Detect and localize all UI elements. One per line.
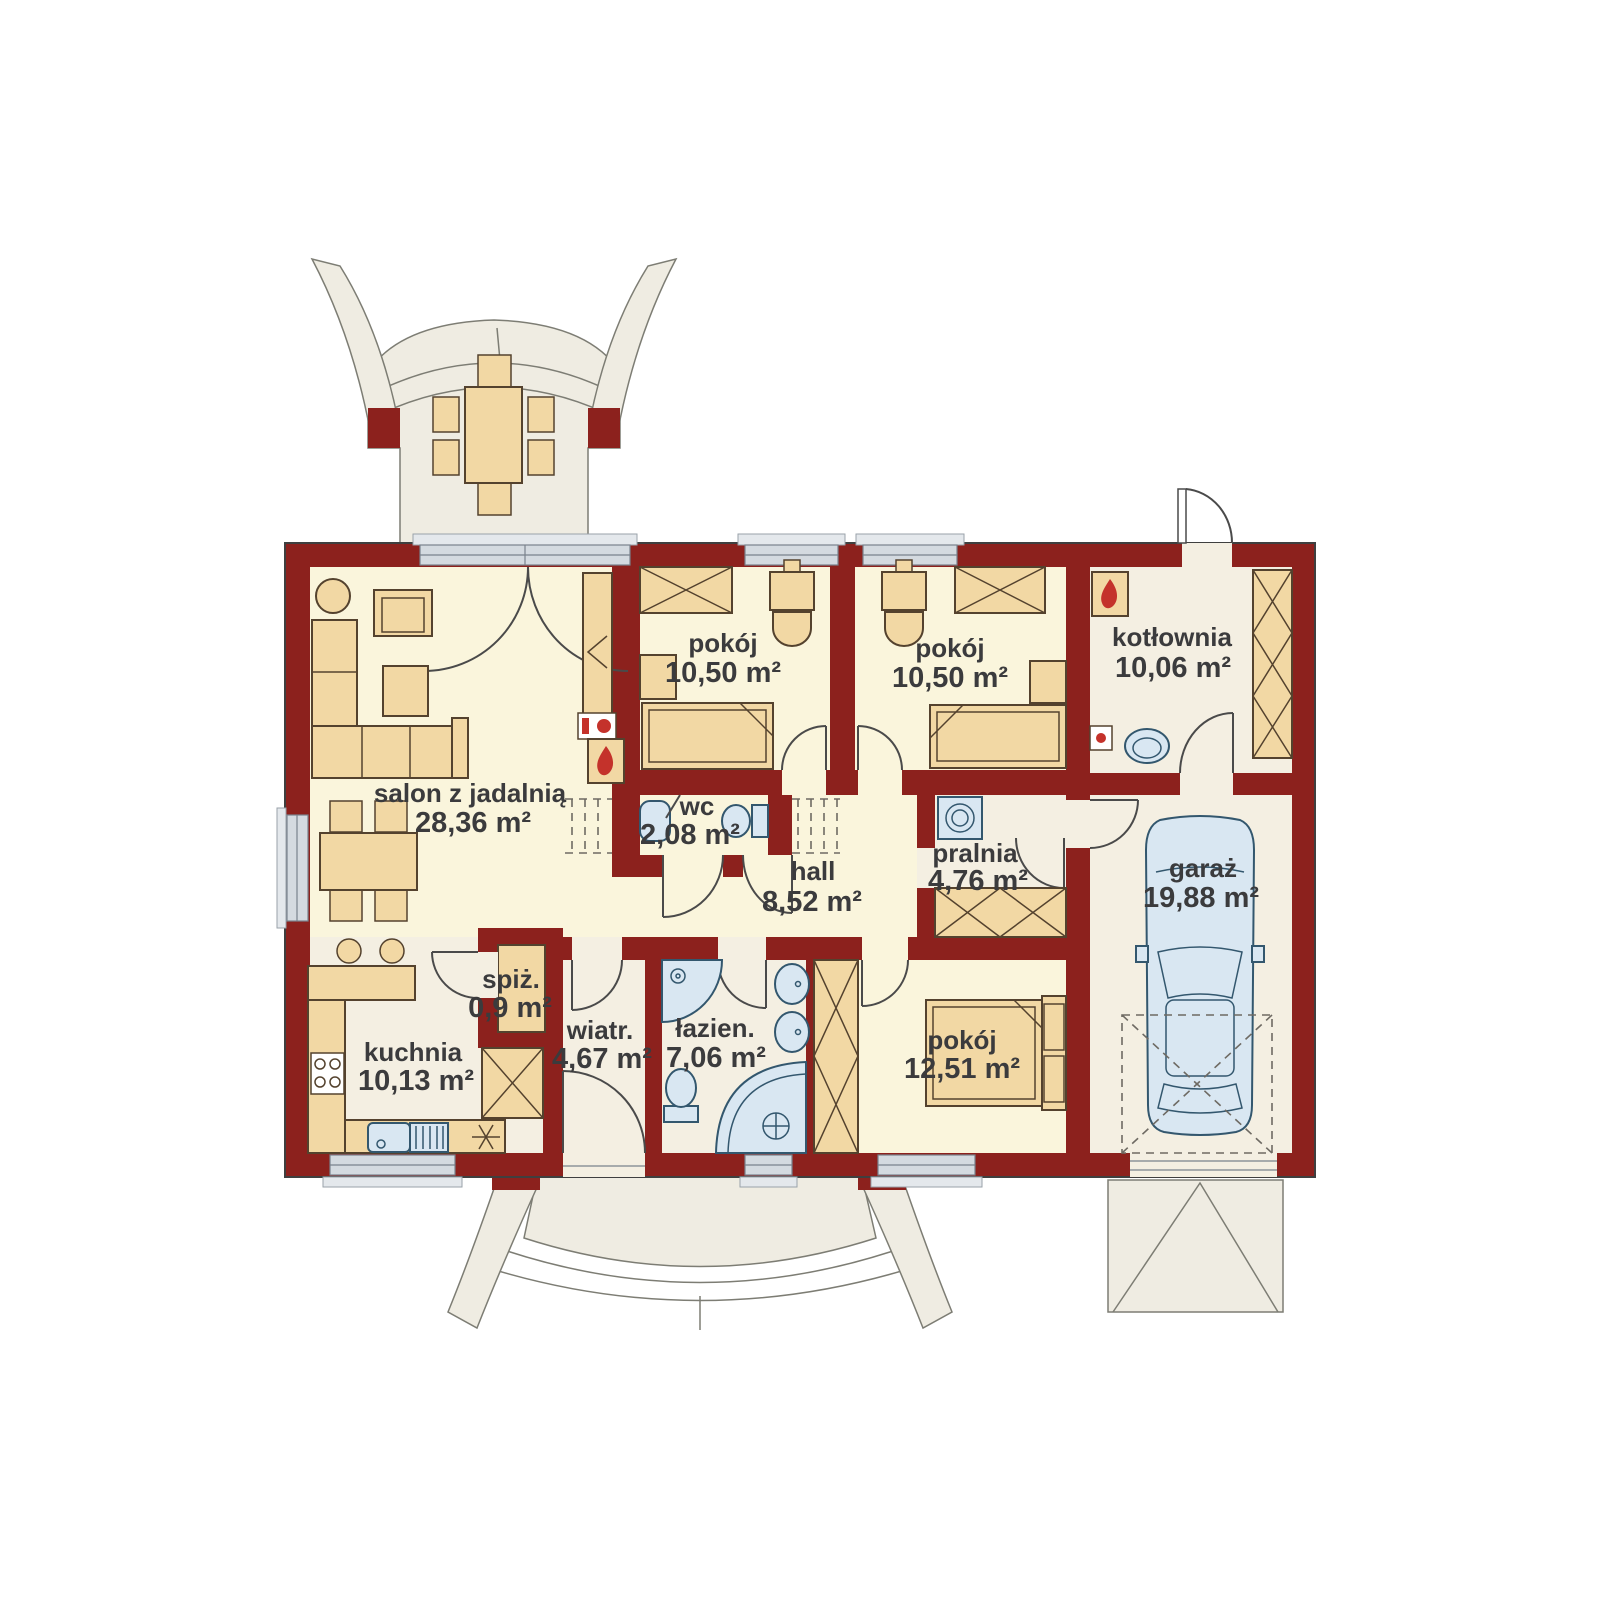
tv-cabinet <box>583 573 612 735</box>
area-wiatr: 4,67 m² <box>552 1043 652 1075</box>
kitchen-sink-icon <box>368 1123 448 1152</box>
label-pokoj-1: pokój <box>688 628 757 658</box>
area-pokoj-2: 10,50 m² <box>892 662 1008 694</box>
label-wc: wc <box>679 791 715 821</box>
terrace-wing-left <box>312 259 398 430</box>
area-pokoj-1: 10,50 m² <box>665 657 781 689</box>
bed-pokoj-1 <box>642 703 773 769</box>
label-spiz: spiż. <box>482 964 540 994</box>
label-pralnia: pralnia <box>932 838 1018 868</box>
cooktop-icon <box>311 1053 344 1094</box>
terrace <box>312 259 676 545</box>
kotlownia-wall-box <box>1090 726 1112 750</box>
kotlownia-sink-icon <box>1125 729 1169 763</box>
window-pokoj-3 <box>871 1155 982 1187</box>
kotlownia-wardrobes-icon <box>1253 570 1292 758</box>
label-kuchnia: kuchnia <box>364 1037 463 1067</box>
bathroom-sink-icon <box>775 964 809 1004</box>
boiler-icon <box>1092 572 1128 616</box>
label-lazienka: łazien. <box>675 1013 754 1043</box>
floor-plan-canvas: salon z jadalnią 28,36 m² pokój 10,50 m²… <box>0 0 1600 1600</box>
bathroom-toilet-icon <box>664 1069 698 1122</box>
area-kotlownia: 10,06 m² <box>1115 652 1231 684</box>
wardrobe-pokoj-3-icon <box>814 960 858 1153</box>
floor-plan: salon z jadalnią 28,36 m² pokój 10,50 m²… <box>0 0 1600 1600</box>
label-pokoj-2: pokój <box>915 633 984 663</box>
area-lazienka: 7,06 m² <box>666 1042 766 1074</box>
driveway <box>1108 1180 1283 1312</box>
side-table-round <box>316 579 350 613</box>
bathroom-sink-icon <box>775 1012 809 1052</box>
label-salon: salon z jadalnią <box>374 778 567 808</box>
window-salon-left <box>277 808 308 928</box>
coffee-table <box>383 666 428 716</box>
area-pralnia: 4,76 m² <box>928 865 1028 897</box>
area-garaz: 19,88 m² <box>1143 882 1259 914</box>
window-kuchnia <box>323 1155 462 1187</box>
terrace-wing-right <box>590 259 676 430</box>
wardrobe-pokoj-1-icon <box>640 567 732 613</box>
terrace-pillar-left <box>368 408 400 448</box>
label-garaz: garaż <box>1169 853 1237 883</box>
area-spiz: 0,9 m² <box>468 992 552 1024</box>
washer-icon <box>938 797 982 839</box>
area-pokoj-3: 12,51 m² <box>904 1053 1020 1085</box>
label-wiatr: wiatr. <box>566 1015 633 1045</box>
chair-pokoj-1 <box>773 612 811 646</box>
porch-wing-right <box>861 1180 952 1328</box>
label-kotlownia: kotłownia <box>1112 622 1232 652</box>
label-pokoj-3: pokój <box>927 1025 996 1055</box>
armchair <box>374 590 432 636</box>
door-kotlownia-exterior <box>1178 489 1232 543</box>
nightstand-pokoj-2 <box>1030 661 1066 703</box>
entrance-porch <box>448 1177 952 1330</box>
area-salon: 28,36 m² <box>415 807 531 839</box>
porch-pillar-left <box>492 1177 540 1190</box>
area-wc: 2,08 m² <box>640 819 740 851</box>
wardrobe-pokoj-2-icon <box>955 567 1045 613</box>
window-lazienka <box>740 1155 797 1187</box>
porch-wing-left <box>448 1180 539 1328</box>
terrace-pillar-right <box>588 408 620 448</box>
window-terrace-door <box>413 534 637 565</box>
desk-pokoj-1 <box>770 560 814 646</box>
bed-pokoj-2 <box>930 705 1066 768</box>
label-hall: hall <box>791 856 836 886</box>
area-hall: 8,52 m² <box>762 886 862 918</box>
area-kuchnia: 10,13 m² <box>358 1065 474 1097</box>
